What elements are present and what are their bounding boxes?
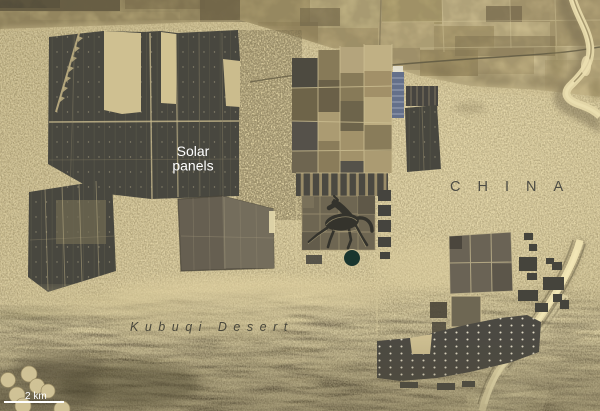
svg-text:panels: panels [172, 158, 213, 174]
svg-text:Kubuqi Desert: Kubuqi Desert [130, 320, 294, 334]
svg-text:2 km: 2 km [25, 391, 47, 402]
svg-text:CHINA: CHINA [450, 179, 580, 195]
